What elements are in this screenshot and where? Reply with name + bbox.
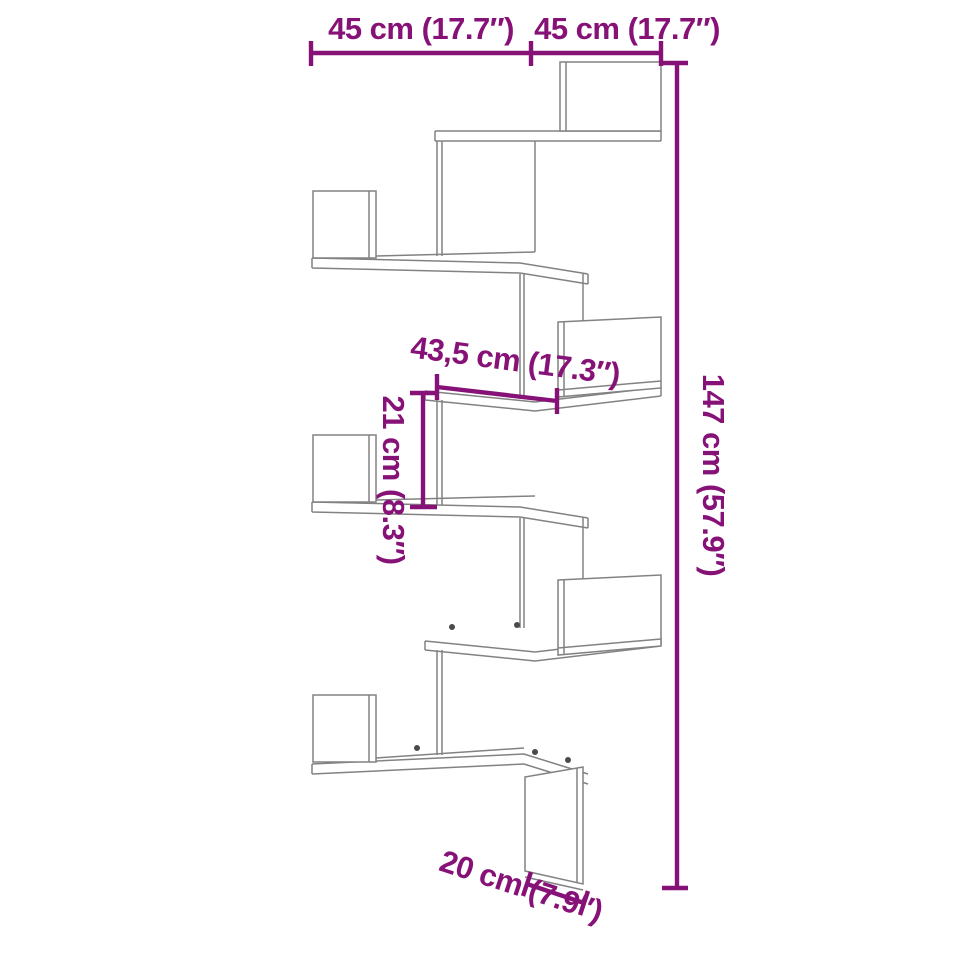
dim-line-total-height (662, 63, 688, 888)
screw-hole-dot (565, 757, 571, 763)
dim-label-width-left: 45 cm (17.7″) (328, 11, 514, 46)
screw-hole-dot (414, 745, 420, 751)
right-panel-lower (558, 575, 661, 655)
dim-line-compartment-height (410, 393, 437, 507)
corner-edge-mid-1 (520, 274, 524, 399)
shelf-board-6-back-edge (376, 748, 524, 758)
left-panel-upper (313, 191, 376, 258)
shelf-board-2 (312, 258, 588, 284)
dim-label-compartment-height: 21 cm (8.3″) (376, 395, 411, 564)
left-panel-lower (313, 695, 376, 762)
divider-bottom (437, 650, 442, 755)
dim-label-total-height: 147 cm (57.9″) (696, 374, 731, 577)
top-right-panel (560, 62, 661, 131)
shelf-board-4 (312, 502, 588, 528)
shelf-wireframe (312, 62, 661, 890)
divider-middle (437, 400, 442, 505)
top-shelf-board (435, 131, 661, 141)
shelf-board-2-back-edge (376, 252, 535, 256)
screw-hole-dot (449, 624, 455, 630)
shelf-dimension-diagram: 45 cm (17.7″) 45 cm (17.7″) 43,5 cm (17.… (0, 0, 955, 955)
screw-hole-dot (514, 622, 520, 628)
divider-top (437, 141, 442, 256)
dim-label-width-right: 45 cm (17.7″) (534, 11, 720, 46)
corner-shelf-drawing: 45 cm (17.7″) 45 cm (17.7″) 43,5 cm (17.… (0, 0, 955, 955)
screw-hole-dot (532, 749, 538, 755)
left-panel-middle (313, 435, 376, 502)
corner-edge-mid-2 (520, 518, 524, 628)
